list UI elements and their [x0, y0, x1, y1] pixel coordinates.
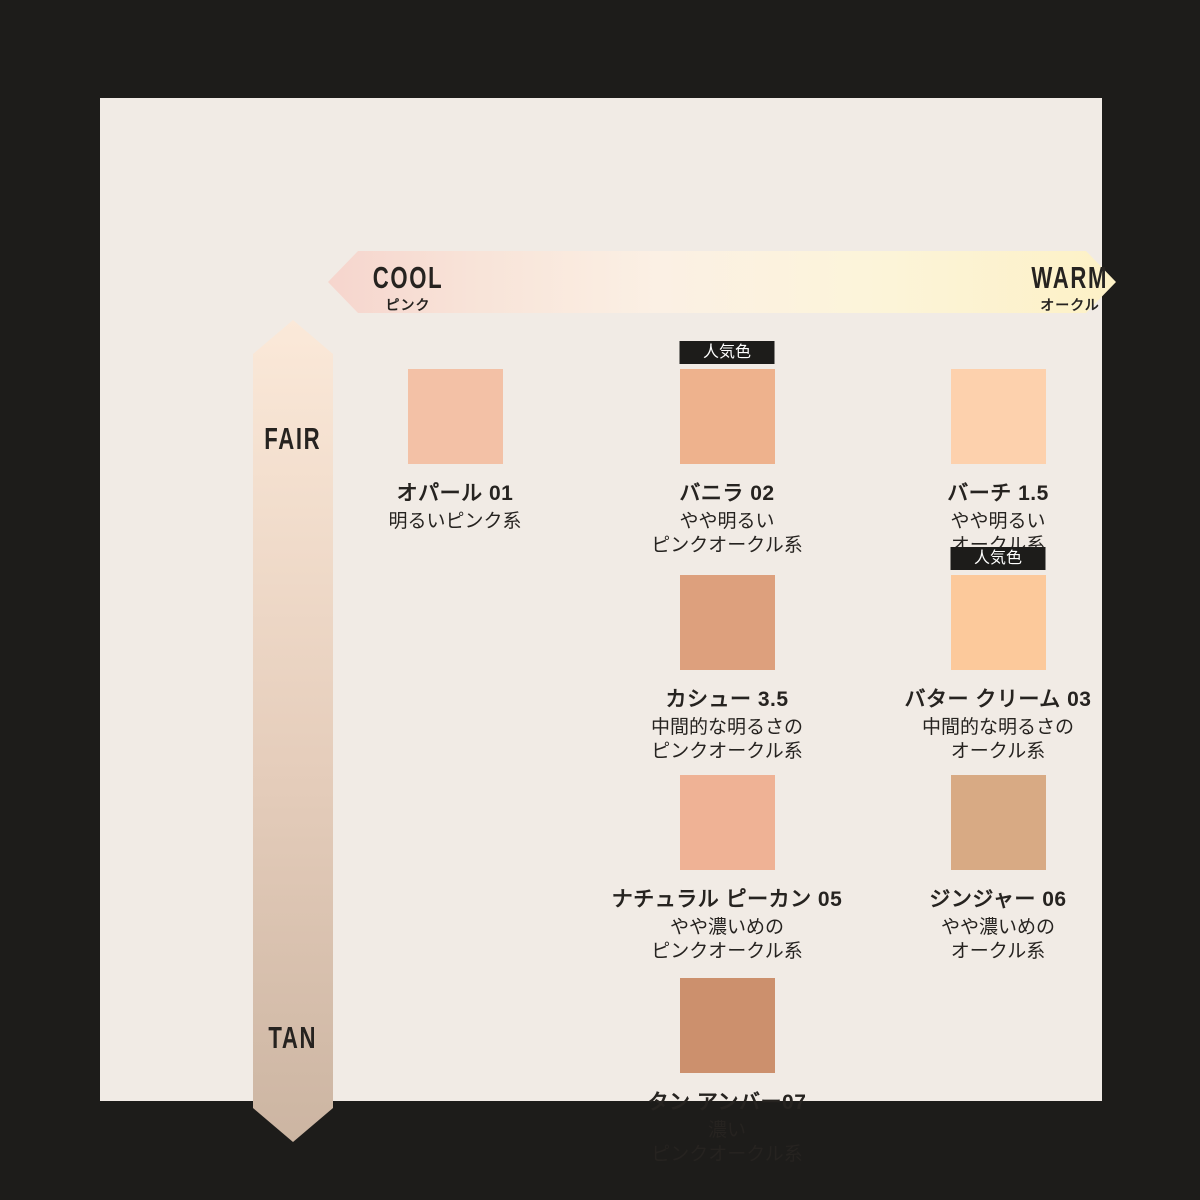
cool-sub-label: ピンク	[338, 295, 478, 315]
shade-name: ジンジャー 06	[838, 883, 1158, 913]
shade-swatch	[680, 575, 775, 670]
warm-label: WARM	[1032, 261, 1109, 296]
shade-description: 中間的な明るさの オークル系	[838, 716, 1158, 764]
shade-swatch	[951, 575, 1046, 670]
cool-axis-label: COOL ピンク	[338, 263, 478, 315]
shade-cell-ginger-06: ジンジャー 06 やや濃いめの オークル系	[838, 775, 1158, 964]
shade-description: やや濃いめの オークル系	[838, 916, 1158, 964]
chart-panel: COOL ピンク WARM オークル FAIR TAN オパール 01 明るいピ…	[100, 98, 1102, 1101]
shade-swatch	[408, 369, 503, 464]
shade-name: バター クリーム 03	[838, 683, 1158, 713]
shade-name: タン アンバー07	[567, 1086, 887, 1116]
shade-swatch	[680, 369, 775, 464]
shade-cell-butter-cream-03: 人気色 バター クリーム 03 中間的な明るさの オークル系	[838, 575, 1158, 764]
product-shade-chart: { "frame": { "outer_bg": "#1d1c1a", "pan…	[0, 0, 1200, 1200]
popular-color-badge: 人気色	[680, 341, 775, 364]
shade-swatch	[951, 369, 1046, 464]
shade-description: 濃い ピンクオークル系	[567, 1119, 887, 1167]
shade-name: バーチ 1.5	[838, 477, 1158, 507]
popular-color-badge: 人気色	[951, 547, 1046, 570]
warm-axis-label: WARM オークル	[1000, 263, 1140, 315]
shade-cell-birch-1-5: バーチ 1.5 やや明るい オークル系	[838, 369, 1158, 558]
shade-swatch	[951, 775, 1046, 870]
warm-sub-label: オークル	[1000, 295, 1140, 315]
shade-swatch	[680, 978, 775, 1073]
tan-axis-label: TAN	[223, 1023, 363, 1054]
shade-swatch	[680, 775, 775, 870]
tan-label: TAN	[269, 1021, 318, 1056]
shade-cell-tan-amber-07: タン アンバー07 濃い ピンクオークル系	[567, 978, 887, 1167]
cool-label: COOL	[373, 261, 444, 296]
